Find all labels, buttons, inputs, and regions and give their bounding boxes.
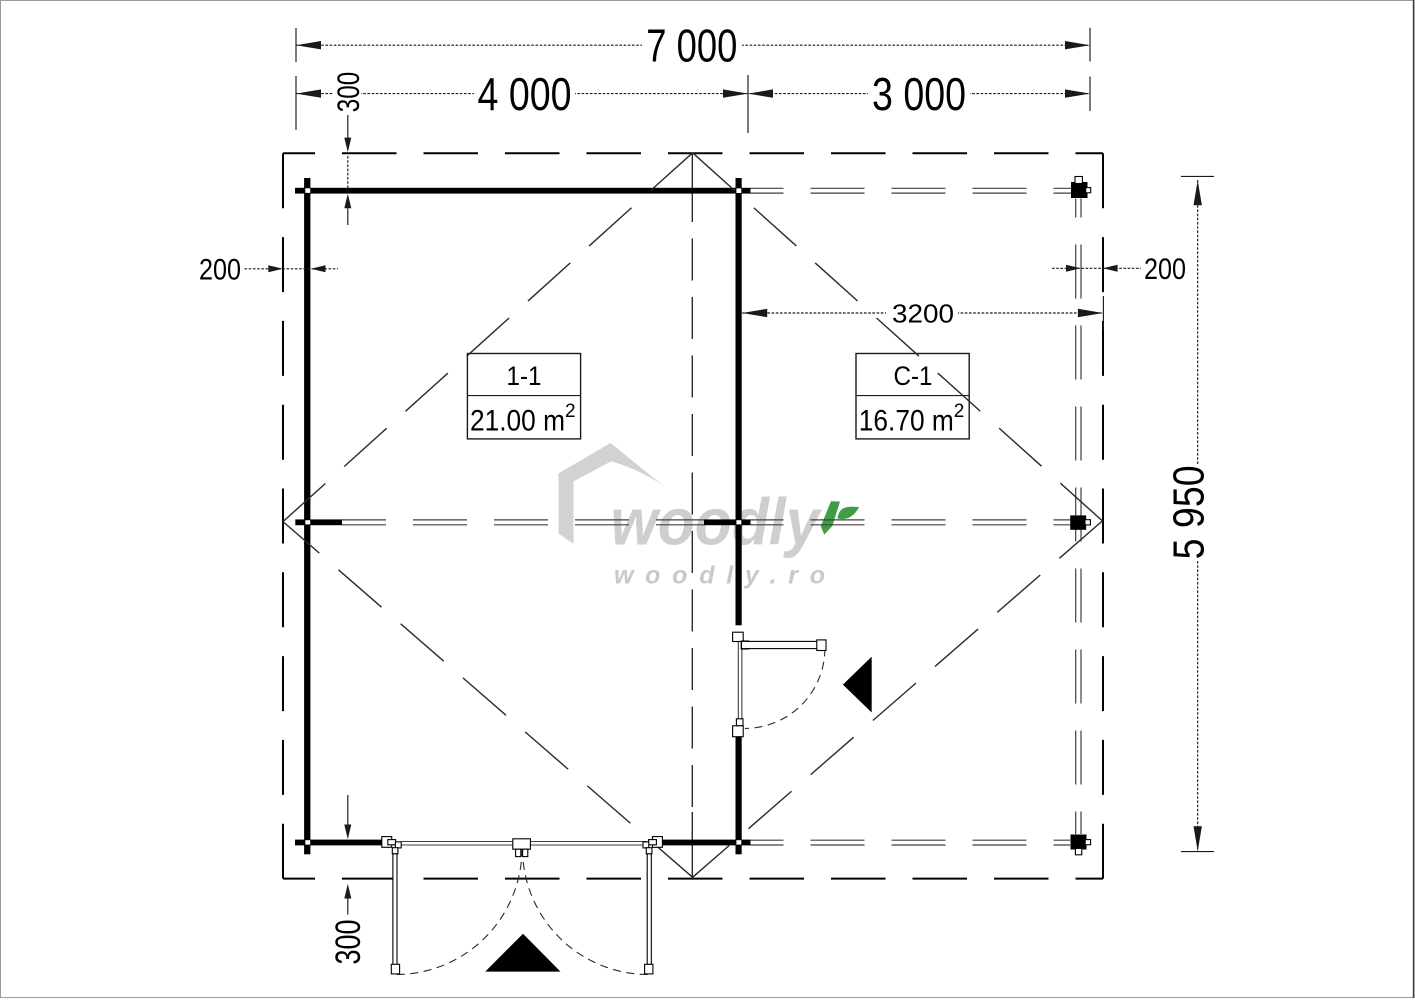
- svg-text:1-1: 1-1: [507, 361, 542, 391]
- svg-text:21.00 m2: 21.00 m2: [470, 401, 576, 438]
- svg-text:200: 200: [1144, 253, 1186, 286]
- svg-text:200: 200: [199, 254, 241, 287]
- svg-text:5 950: 5 950: [1165, 465, 1214, 559]
- svg-text:4 000: 4 000: [478, 68, 572, 120]
- svg-text:C-1: C-1: [894, 361, 933, 391]
- svg-text:3 000: 3 000: [872, 68, 966, 120]
- svg-text:16.70 m2: 16.70 m2: [859, 401, 965, 438]
- svg-text:3200: 3200: [892, 299, 954, 329]
- svg-text:300: 300: [329, 920, 368, 965]
- svg-text:7 000: 7 000: [646, 20, 737, 72]
- svg-text:300: 300: [330, 72, 366, 113]
